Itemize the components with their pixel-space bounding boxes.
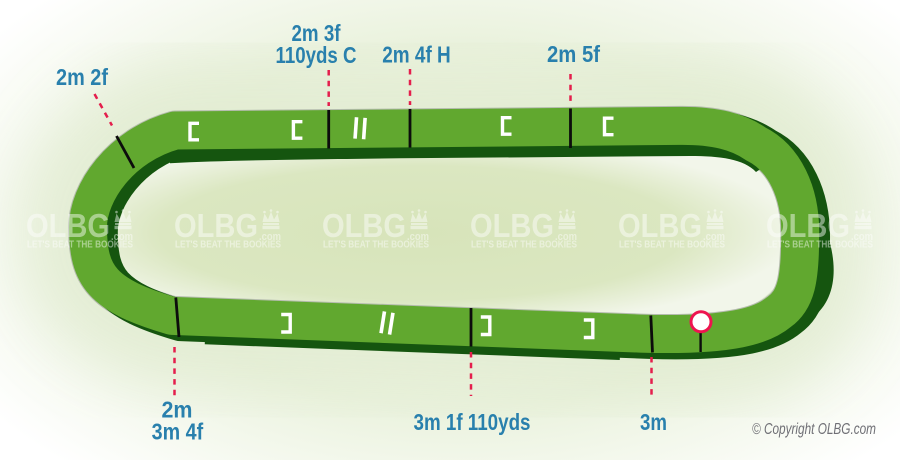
svg-text:3m 1f 110yds: 3m 1f 110yds <box>414 409 531 435</box>
svg-text:LET'S BEAT THE BOOKIES: LET'S BEAT THE BOOKIES <box>175 239 281 251</box>
svg-text:3m 4f: 3m 4f <box>152 419 204 445</box>
svg-text:© Copyright OLBG.com: © Copyright OLBG.com <box>752 421 876 438</box>
svg-text:2m 2f: 2m 2f <box>56 64 108 90</box>
svg-text:LET'S BEAT THE BOOKIES: LET'S BEAT THE BOOKIES <box>471 239 577 251</box>
svg-text:LET'S BEAT THE BOOKIES: LET'S BEAT THE BOOKIES <box>27 239 133 251</box>
svg-text:2m 5f: 2m 5f <box>547 41 600 67</box>
svg-text:LET'S BEAT THE BOOKIES: LET'S BEAT THE BOOKIES <box>323 239 429 251</box>
svg-text:LET'S BEAT THE BOOKIES: LET'S BEAT THE BOOKIES <box>619 239 725 251</box>
svg-text:110yds C: 110yds C <box>276 42 357 68</box>
svg-text:LET'S BEAT THE BOOKIES: LET'S BEAT THE BOOKIES <box>767 239 873 251</box>
svg-text:2m 4f H: 2m 4f H <box>382 42 451 68</box>
svg-text:3m: 3m <box>640 409 667 435</box>
